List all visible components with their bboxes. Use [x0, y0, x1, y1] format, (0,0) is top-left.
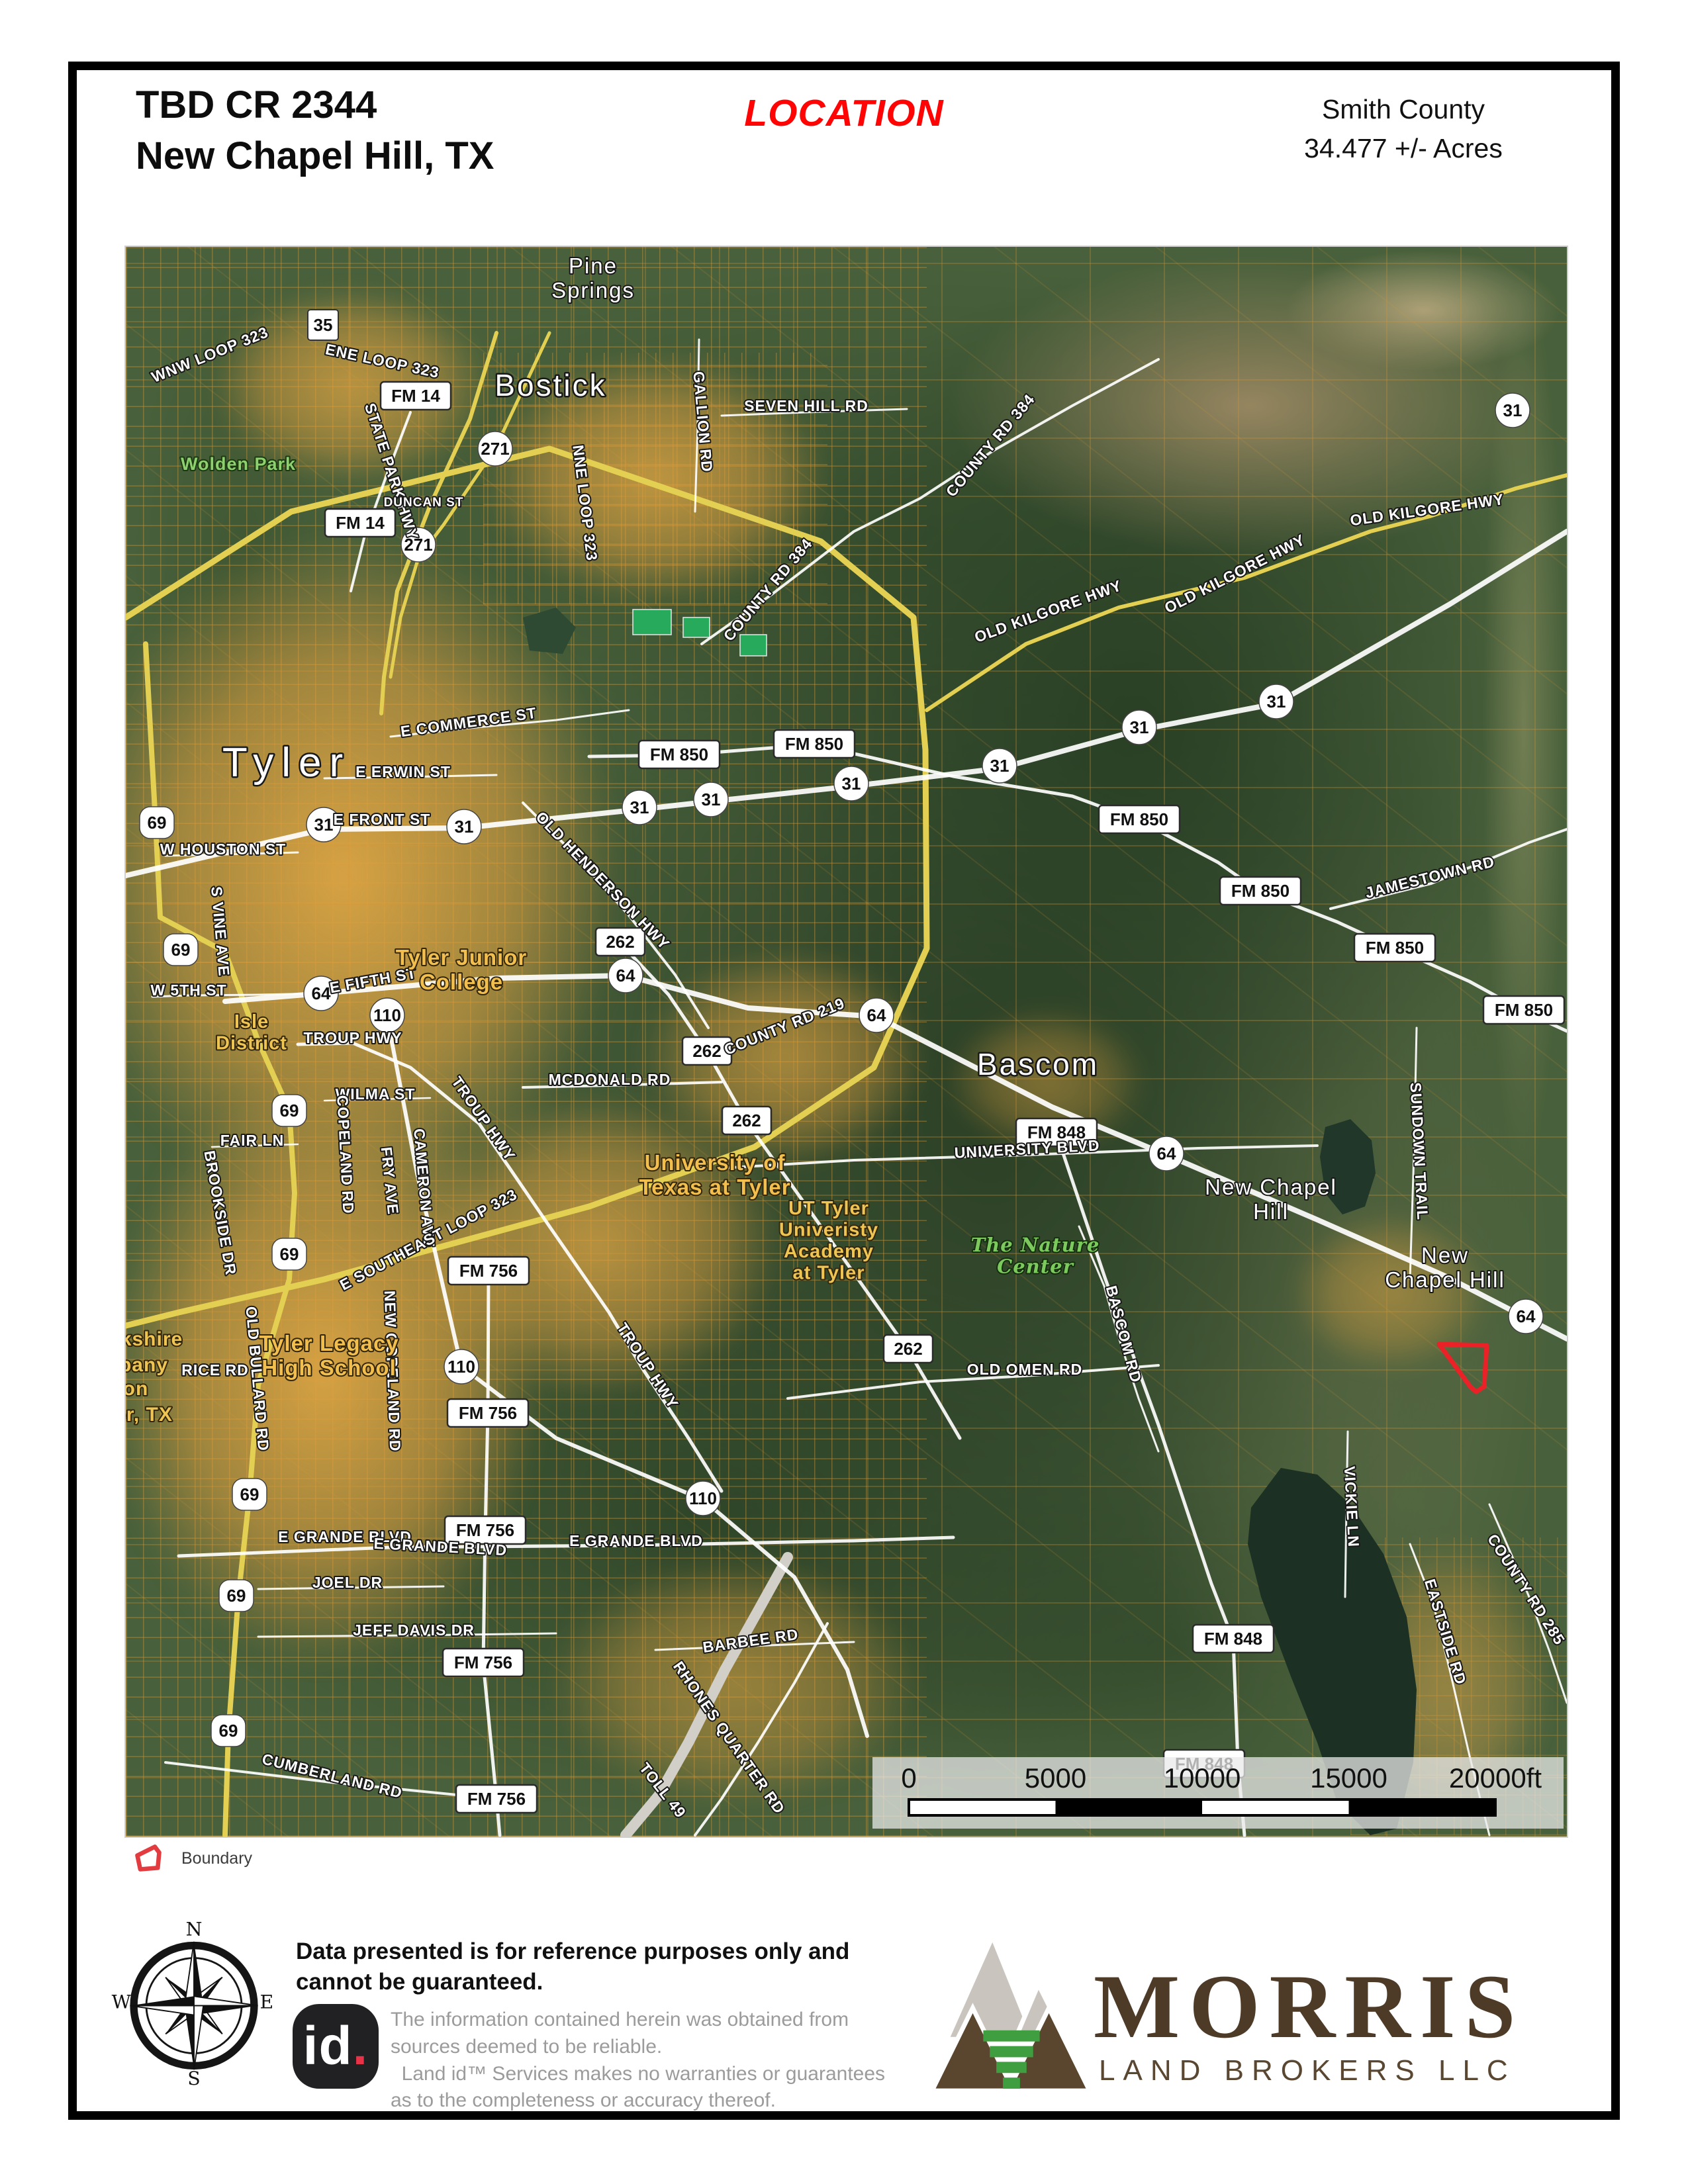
property-title-line1: TBD CR 2344	[136, 79, 494, 130]
highway-shield-69: 69	[219, 1580, 254, 1612]
map-label: on	[126, 1378, 148, 1400]
highway-shield-110: 110	[686, 1481, 720, 1516]
svg-text:FM 14: FM 14	[391, 386, 440, 406]
map-label: UT TylerUniveristyAcademyat Tyler	[779, 1198, 878, 1283]
map-label: W HOUSTON ST	[160, 841, 286, 858]
map-label: OLD OMEN RD	[967, 1361, 1083, 1378]
map-label: GALLION RD	[690, 371, 716, 473]
svg-text:262: 262	[894, 1339, 922, 1359]
highway-shield-fm-848: FM 848	[1193, 1625, 1274, 1653]
map-label: UNIVERSITY BLVD	[954, 1136, 1100, 1161]
svg-text:35: 35	[314, 315, 333, 335]
land-id-logo-text: id	[303, 2015, 353, 2077]
compass-letter-s: S	[187, 2068, 200, 2089]
highway-shield-31: 31	[447, 809, 481, 844]
map-label: ENE LOOP 323	[324, 340, 441, 381]
map-label: BROOKSIDE DR	[201, 1149, 240, 1277]
map-label: The NatureCenter	[971, 1234, 1100, 1277]
map-label: pany	[126, 1354, 168, 1376]
map-label: OLD KILGORE HWY	[1349, 490, 1505, 529]
highway-shield-fm-14: FM 14	[381, 382, 451, 410]
svg-text:FM 850: FM 850	[785, 734, 843, 754]
map-label: JAMESTOWN RD	[1364, 852, 1497, 901]
map-label: EASTSIDE RD	[1421, 1577, 1470, 1687]
highway-shield-31: 31	[982, 749, 1017, 783]
svg-text:271: 271	[481, 439, 509, 459]
satellite-map: 3131313131313131316464646464110110110271…	[126, 247, 1567, 1837]
map-label: IsleDistrict	[216, 1011, 287, 1054]
map-label: MCDONALD RD	[549, 1071, 671, 1088]
acreage-value: 34.477 +/- Acres	[1244, 129, 1562, 168]
highway-shield-fm-850: FM 850	[774, 730, 855, 758]
compass-letter-w: W	[112, 1991, 132, 2013]
highway-shield-64: 64	[608, 958, 643, 993]
highway-shield-fm-14: FM 14	[325, 509, 395, 537]
highway-shield-35: 35	[308, 310, 338, 340]
highway-shield-262: 262	[596, 928, 645, 956]
legend-boundary-label: Boundary	[181, 1849, 252, 1868]
map-label: E COMMERCE ST	[399, 704, 538, 741]
svg-text:31: 31	[990, 756, 1009, 776]
svg-text:69: 69	[280, 1101, 299, 1120]
svg-text:31: 31	[702, 790, 721, 809]
svg-text:110: 110	[373, 1005, 401, 1025]
svg-text:69: 69	[171, 940, 191, 960]
map-svg: 3131313131313131316464646464110110110271…	[126, 247, 1567, 1837]
county-acreage: Smith County 34.477 +/- Acres	[1244, 90, 1562, 169]
svg-text:FM 850: FM 850	[1366, 938, 1424, 958]
map-label: TROUP HWY	[614, 1320, 682, 1412]
svg-text:69: 69	[219, 1721, 238, 1741]
highway-shield-fm-756: FM 756	[447, 1399, 528, 1427]
svg-text:31: 31	[630, 797, 649, 817]
scale-bar: 05000100001500020000ft	[872, 1757, 1564, 1829]
svg-text:FM 756: FM 756	[467, 1789, 526, 1809]
morris-logo-subtitle: LAND BROKERS LLC	[1099, 2054, 1516, 2087]
map-label: WNW LOOP 323	[149, 323, 271, 386]
map-label: COUNTY RD 384	[720, 535, 816, 644]
map-label: FAIR LN	[220, 1132, 284, 1149]
morris-logo-name: MORRIS	[1094, 1954, 1524, 2059]
highway-shield-69: 69	[272, 1095, 306, 1126]
svg-text:31: 31	[1130, 717, 1149, 737]
reference-disclaimer: Data presented is for reference purposes…	[296, 1936, 849, 1997]
map-label: JOEL DR	[312, 1574, 383, 1591]
svg-text:64: 64	[1157, 1144, 1176, 1163]
boundary-legend-icon	[134, 1844, 163, 1873]
county-name: Smith County	[1244, 90, 1562, 129]
reference-disclaimer-line1: Data presented is for reference purposes…	[296, 1936, 849, 1967]
svg-text:FM 14: FM 14	[336, 513, 385, 533]
highway-shield-262: 262	[884, 1335, 933, 1363]
svg-text:31: 31	[455, 817, 474, 837]
map-label: New ChapelHill	[1205, 1175, 1337, 1224]
map-label: Wolden Park	[181, 454, 296, 474]
highway-shield-31: 31	[1495, 393, 1530, 428]
map-label: er, TX	[126, 1404, 173, 1426]
highway-shield-69: 69	[232, 1479, 267, 1510]
map-label: Bascom	[977, 1047, 1099, 1081]
map-label: PineSprings	[551, 253, 635, 302]
map-label: RICE RD	[181, 1361, 249, 1379]
map-label: FRY AVE	[378, 1146, 402, 1216]
map-label: JEFF DAVIS DR	[353, 1621, 475, 1639]
compass-letter-n: N	[186, 1918, 203, 1940]
svg-text:FM 756: FM 756	[454, 1653, 512, 1672]
map-label: COPELAND RD	[334, 1095, 357, 1214]
svg-text:FM 756: FM 756	[459, 1261, 518, 1281]
highway-shield-fm-850: FM 850	[1483, 996, 1564, 1024]
highway-shield-fm-756: FM 756	[456, 1785, 537, 1813]
compass-rose-icon: NESW	[111, 1918, 277, 2093]
land-id-disclaimer: The information contained herein was obt…	[391, 2007, 885, 2115]
svg-text:31: 31	[1267, 692, 1286, 711]
map-label: S VINE AVE	[208, 886, 233, 977]
highway-shield-fm-850: FM 850	[1354, 934, 1435, 962]
svg-text:FM 848: FM 848	[1204, 1629, 1262, 1649]
svg-text:69: 69	[280, 1244, 299, 1264]
map-label: SUNDOWN TRAIL	[1407, 1082, 1432, 1221]
highway-shield-110: 110	[370, 998, 404, 1032]
svg-text:69: 69	[148, 813, 167, 833]
map-label: E ERWIN ST	[355, 763, 451, 780]
highway-shield-31: 31	[1122, 710, 1156, 745]
svg-text:64: 64	[616, 966, 635, 985]
highway-shield-64: 64	[1149, 1136, 1184, 1171]
svg-text:FM 850: FM 850	[1231, 881, 1289, 901]
svg-text:69: 69	[227, 1586, 246, 1606]
map-label: Bostick	[494, 368, 606, 402]
svg-text:FM 756: FM 756	[456, 1520, 514, 1540]
svg-text:31: 31	[314, 815, 334, 835]
legend: Boundary	[134, 1844, 252, 1873]
svg-text:110: 110	[689, 1488, 717, 1508]
svg-text:64: 64	[312, 983, 331, 1003]
svg-text:FM 850: FM 850	[1110, 809, 1168, 829]
svg-text:10000: 10000	[1164, 1762, 1241, 1794]
map-label: NewChapel Hill	[1385, 1243, 1505, 1292]
map-label: TROUP HWY	[448, 1073, 519, 1164]
map-label: COUNTY RD 384	[943, 390, 1039, 500]
map-label: Tyler LegacyHigh School	[259, 1331, 399, 1380]
compass-letter-e: E	[259, 1991, 273, 2013]
highway-shield-fm-756: FM 756	[443, 1649, 524, 1676]
land-id-logo: id.	[293, 2004, 379, 2089]
highway-shield-271: 271	[478, 432, 512, 466]
map-label: W 5TH ST	[150, 981, 226, 999]
subject-boundary	[1439, 1344, 1487, 1392]
map-label: SEVEN HILL RD	[744, 397, 868, 414]
highway-shield-31: 31	[622, 790, 657, 825]
map-label: Tyler	[222, 740, 351, 786]
svg-text:FM 850: FM 850	[650, 745, 708, 764]
highway-shield-69: 69	[211, 1715, 246, 1747]
map-label: E GRANDE BLVD	[569, 1532, 703, 1549]
highway-shield-69: 69	[164, 934, 198, 966]
highway-shield-fm-850: FM 850	[1099, 805, 1180, 833]
svg-text:262: 262	[732, 1111, 761, 1130]
svg-text:0: 0	[901, 1762, 916, 1794]
svg-text:262: 262	[692, 1041, 721, 1061]
map-label: DUNCAN ST	[384, 496, 464, 510]
svg-text:31: 31	[1503, 400, 1523, 420]
svg-text:20000ft: 20000ft	[1449, 1762, 1542, 1794]
morris-logo-icon	[932, 1938, 1090, 2091]
land-id-disclaimer-line3: Land id™ Services makes no warranties or…	[391, 2061, 885, 2088]
location-heading: LOCATION	[662, 91, 1026, 135]
highway-shield-31: 31	[694, 782, 728, 817]
highway-shield-262: 262	[722, 1107, 771, 1134]
svg-text:31: 31	[842, 774, 861, 794]
svg-text:110: 110	[447, 1357, 475, 1377]
land-id-disclaimer-line2: sources deemed to be reliable.	[391, 2034, 885, 2061]
map-label: TROUP HWY	[303, 1029, 402, 1046]
reference-disclaimer-line2: cannot be guaranteed.	[296, 1967, 849, 1997]
map-label: E FRONT ST	[334, 811, 431, 828]
land-id-disclaimer-line4: as to the completeness or accuracy there…	[391, 2087, 885, 2115]
highway-shield-64: 64	[859, 998, 894, 1032]
svg-text:FM 756: FM 756	[459, 1403, 517, 1423]
svg-text:15000: 15000	[1310, 1762, 1387, 1794]
svg-text:262: 262	[606, 932, 634, 952]
map-label: University ofTexas at Tyler	[639, 1150, 790, 1199]
map-label: COUNTY RD 285	[1484, 1531, 1567, 1648]
highway-shield-69: 69	[272, 1238, 306, 1270]
highway-shield-69: 69	[140, 807, 174, 839]
highway-shield-31: 31	[834, 766, 868, 801]
svg-text:FM 850: FM 850	[1495, 1000, 1553, 1020]
land-id-logo-dot: .	[353, 2015, 369, 2077]
land-id-disclaimer-line1: The information contained herein was obt…	[391, 2007, 885, 2034]
highway-shield-fm-850: FM 850	[1220, 877, 1301, 905]
svg-text:69: 69	[240, 1484, 259, 1504]
svg-text:5000: 5000	[1025, 1762, 1086, 1794]
highway-shield-31: 31	[1259, 684, 1293, 719]
highway-shield-64: 64	[1509, 1299, 1543, 1334]
property-title: TBD CR 2344 New Chapel Hill, TX	[136, 79, 494, 181]
highway-shield-fm-756: FM 756	[448, 1257, 529, 1285]
svg-text:64: 64	[867, 1005, 886, 1025]
property-title-line2: New Chapel Hill, TX	[136, 130, 494, 181]
svg-text:64: 64	[1517, 1306, 1536, 1326]
highway-shield-fm-850: FM 850	[639, 741, 720, 768]
map-label: kshire	[126, 1328, 183, 1350]
highway-shield-110: 110	[444, 1349, 479, 1384]
map-label: OLD KILGORE HWY	[1162, 531, 1308, 617]
